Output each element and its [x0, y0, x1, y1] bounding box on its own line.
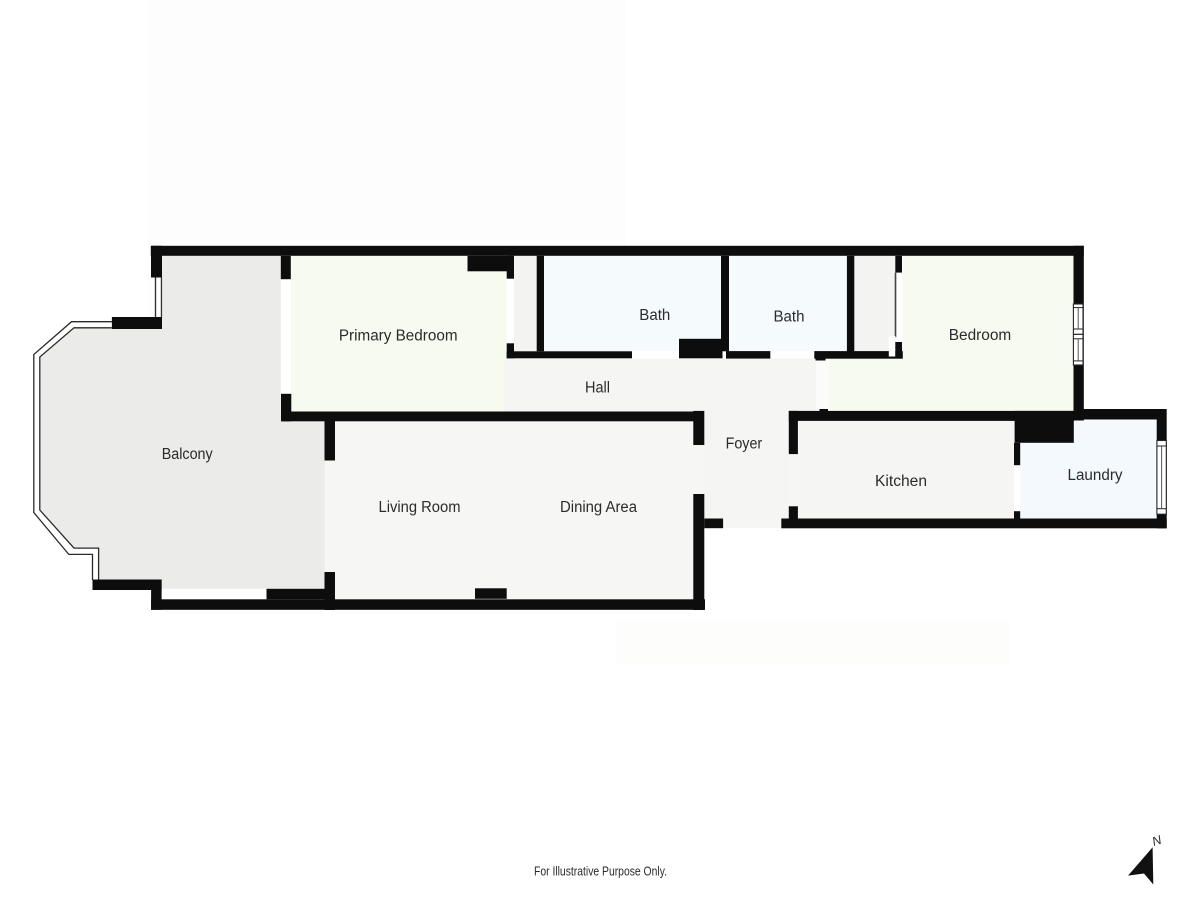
svg-text:Bath: Bath — [774, 309, 805, 326]
svg-text:Dining Area: Dining Area — [560, 499, 637, 516]
svg-text:For Illustrative Purpose Only.: For Illustrative Purpose Only. — [534, 864, 667, 879]
svg-text:Balcony: Balcony — [162, 446, 213, 463]
svg-text:Primary Bedroom: Primary Bedroom — [339, 328, 458, 345]
svg-text:Foyer: Foyer — [726, 436, 763, 453]
svg-text:Kitchen: Kitchen — [875, 473, 927, 490]
svg-text:Hall: Hall — [585, 380, 610, 397]
svg-text:Bedroom: Bedroom — [949, 327, 1012, 344]
svg-text:Laundry: Laundry — [1068, 467, 1123, 484]
svg-text:Bath: Bath — [639, 307, 670, 324]
svg-text:Living Room: Living Room — [379, 499, 461, 516]
